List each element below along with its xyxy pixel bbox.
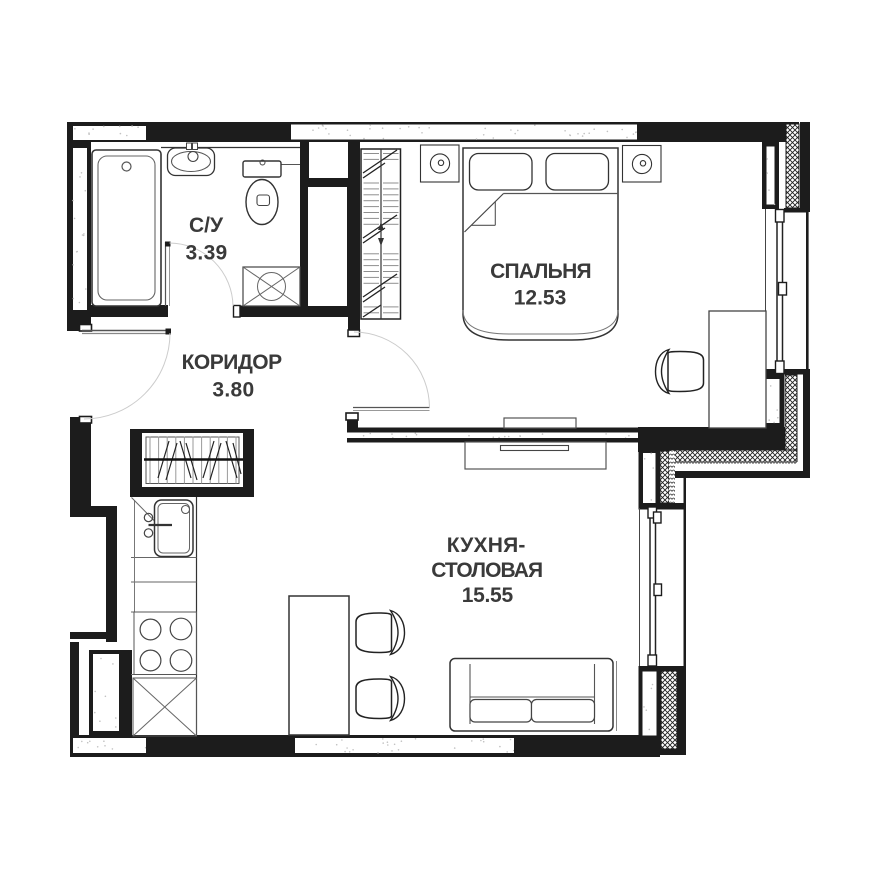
svg-text:СПАЛЬНЯ: СПАЛЬНЯ (490, 260, 591, 283)
svg-text:3.80: 3.80 (212, 379, 254, 402)
svg-text:15.55: 15.55 (462, 584, 514, 607)
svg-text:КУХНЯ-: КУХНЯ- (447, 534, 526, 557)
svg-text:КОРИДОР: КОРИДОР (182, 351, 283, 374)
svg-text:С/У: С/У (189, 214, 224, 237)
svg-text:СТОЛОВАЯ: СТОЛОВАЯ (431, 559, 542, 582)
svg-text:12.53: 12.53 (514, 287, 567, 310)
svg-text:3.39: 3.39 (185, 242, 227, 265)
